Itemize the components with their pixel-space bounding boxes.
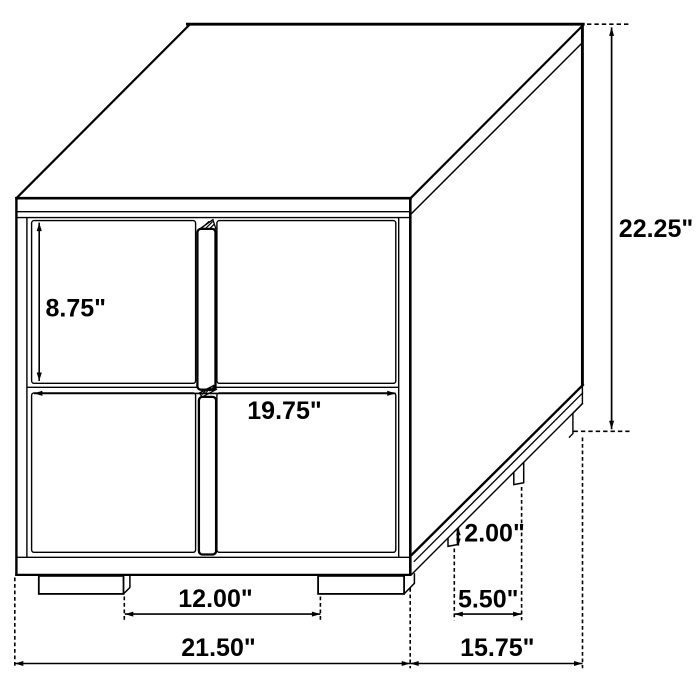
- svg-text:8.75": 8.75": [46, 295, 107, 323]
- svg-text:5.50": 5.50": [458, 586, 519, 614]
- svg-text:12.00": 12.00": [178, 585, 252, 613]
- svg-text:21.50": 21.50": [181, 634, 255, 662]
- svg-text:15.75": 15.75": [460, 634, 534, 662]
- svg-text:2.00": 2.00": [464, 519, 525, 547]
- svg-text:19.75": 19.75": [247, 397, 321, 425]
- svg-text:22.25": 22.25": [619, 215, 693, 243]
